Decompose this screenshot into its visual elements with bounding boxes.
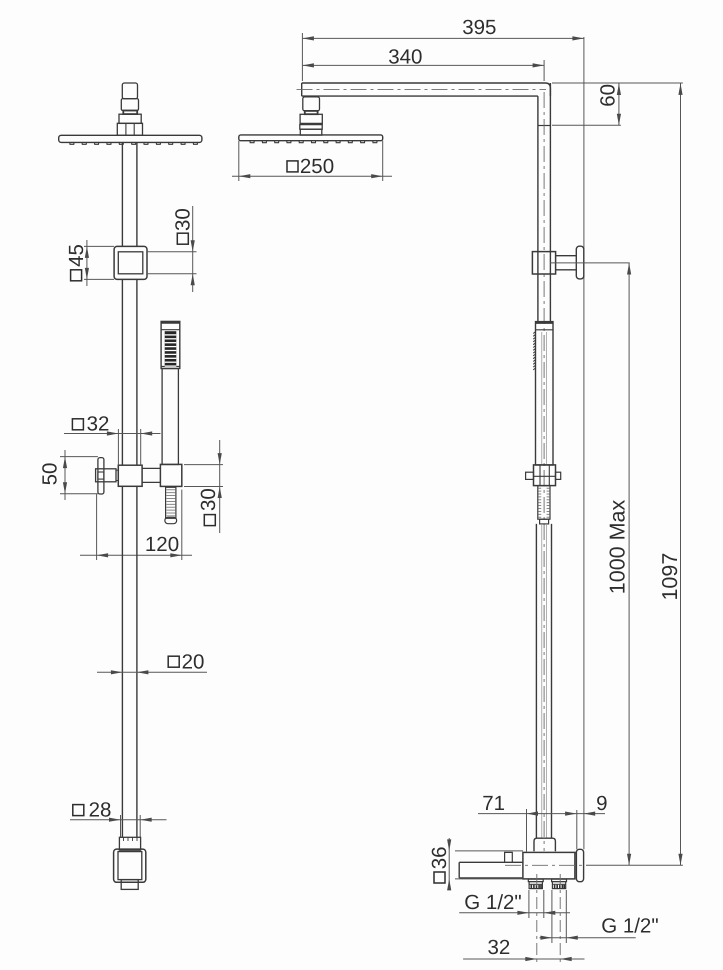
- svg-text:45: 45: [65, 244, 88, 267]
- svg-text:32: 32: [87, 413, 110, 436]
- svg-text:9: 9: [596, 792, 607, 815]
- svg-text:1000 Max: 1000 Max: [606, 500, 630, 595]
- svg-text:50: 50: [39, 463, 62, 486]
- svg-text:1097: 1097: [658, 553, 682, 601]
- svg-text:G 1/2": G 1/2": [601, 914, 658, 937]
- svg-text:60: 60: [597, 84, 620, 107]
- svg-text:30: 30: [171, 208, 194, 231]
- svg-text:28: 28: [89, 798, 112, 821]
- svg-text:G 1/2": G 1/2": [464, 891, 521, 914]
- svg-text:340: 340: [388, 46, 422, 69]
- svg-text:120: 120: [145, 533, 179, 556]
- svg-text:250: 250: [300, 155, 334, 178]
- svg-text:36: 36: [428, 846, 451, 869]
- svg-text:71: 71: [482, 792, 505, 815]
- svg-text:32: 32: [487, 936, 510, 959]
- svg-text:30: 30: [197, 488, 220, 511]
- svg-text:395: 395: [462, 16, 496, 39]
- svg-text:20: 20: [182, 651, 205, 674]
